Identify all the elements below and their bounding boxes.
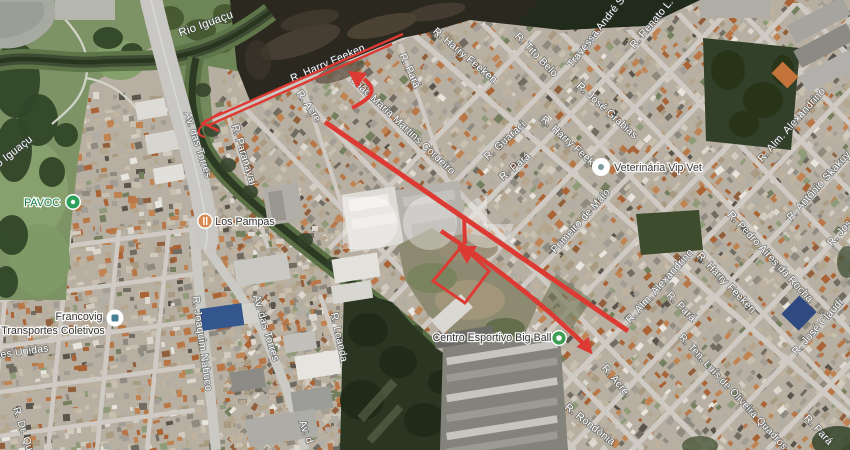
svg-text:Francovig: Francovig [56,311,103,323]
svg-text:Los Pampas: Los Pampas [215,216,274,228]
svg-text:Centro Esportivo Big Ball: Centro Esportivo Big Ball [433,332,552,344]
svg-text:PAVOC: PAVOC [24,197,60,209]
svg-text:Veterinária Vip Vet: Veterinária Vip Vet [614,162,702,174]
svg-text:Transportes Coletivos: Transportes Coletivos [1,325,105,337]
